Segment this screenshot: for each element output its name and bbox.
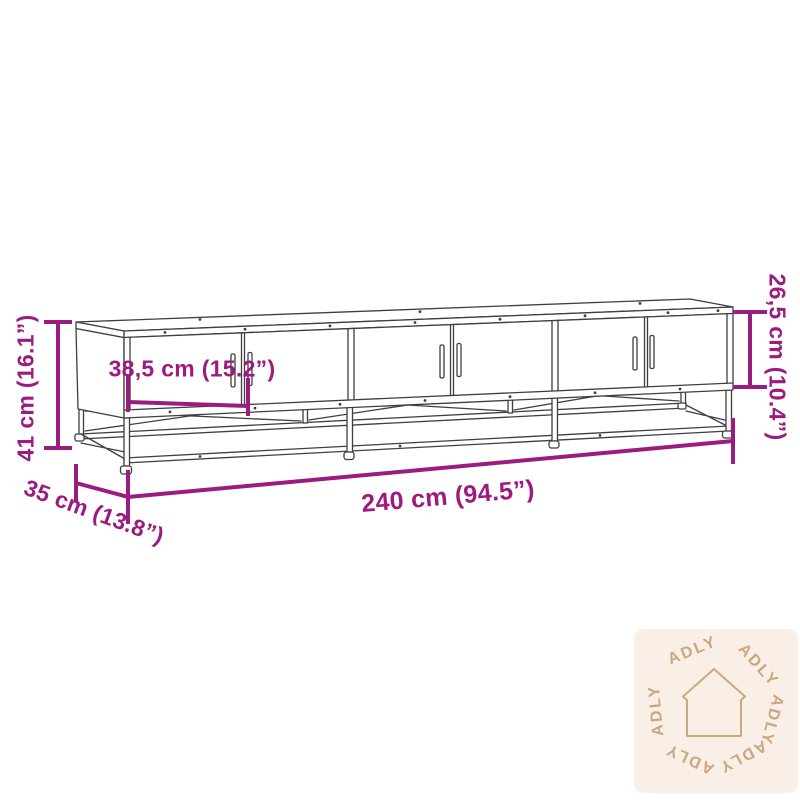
foot xyxy=(344,452,354,460)
dimension-label-door-width: 38,5 cm (15.2”) xyxy=(109,356,276,383)
product-dimension-diagram: 41 cm (16.1”) 38,5 cm (15.2”) 26,5 cm (1… xyxy=(0,0,800,800)
dimension-label-height: 41 cm (16.1”) xyxy=(13,314,40,461)
foot xyxy=(549,441,559,448)
dimension-line-height xyxy=(44,322,72,448)
dimension-line-opening-height xyxy=(733,312,767,387)
brand-watermark: ADLY ADLY ADLY ADLY ADLY ADLY xyxy=(634,629,798,793)
dimension-label-opening-height: 26,5 cm (10.4”) xyxy=(764,274,791,441)
